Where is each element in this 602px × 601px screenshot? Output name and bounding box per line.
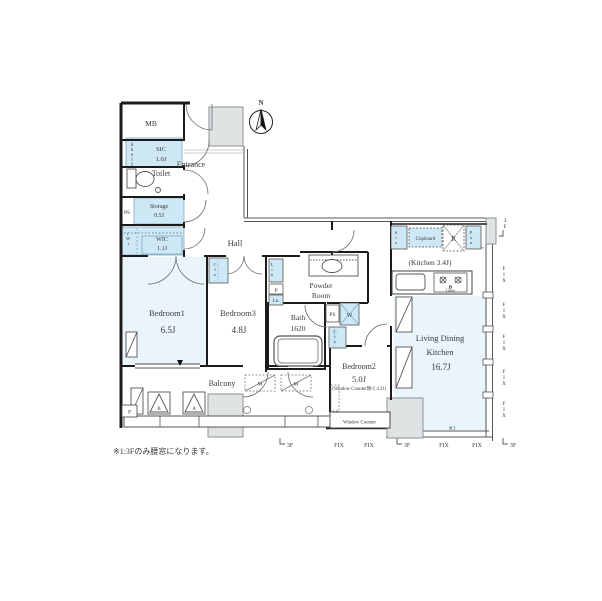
cupboard-label: Cupboard: [416, 237, 436, 242]
service-boxes-mid: [326, 303, 359, 348]
fix-labels-right: FIX FIX FIX FIX FIX 3F: [501, 218, 508, 419]
storage-floor: [134, 198, 184, 224]
hatch-b-label: B: [157, 407, 161, 412]
bath-size: 1620: [291, 324, 306, 333]
kitchen-counter: [392, 271, 472, 294]
balcony-label: Balcony: [209, 379, 236, 388]
ln-label: Ln.: [273, 299, 280, 304]
linen-label: Lin.: [270, 262, 275, 282]
m1-label: M: [258, 382, 263, 388]
kitchen-sink: [396, 274, 425, 290]
p-balcony-label: P: [128, 410, 131, 416]
ps-left-label: PS: [124, 210, 130, 216]
bedroom3-door-left: [226, 256, 244, 274]
powder-label-1: Powder: [310, 281, 333, 290]
fix-label: FIX: [439, 443, 449, 449]
sic-size: 1.0J: [156, 156, 167, 163]
ldk-size: 16.7J: [431, 362, 451, 372]
fix-label: FIX: [364, 443, 374, 449]
wic-label: WIC: [156, 237, 168, 243]
bedroom1-size: 6.5J: [161, 325, 176, 335]
compass-icon: [250, 109, 273, 134]
vanity-fixture: [309, 255, 358, 276]
sic-label: SIC: [156, 146, 166, 153]
powder-label-2: Room: [312, 291, 331, 300]
toilet-door: [184, 170, 208, 194]
entrance-door: [186, 104, 212, 130]
bath-label: Bath: [291, 313, 305, 322]
column-bottom: [387, 398, 423, 438]
bedroom2-door: [365, 324, 387, 346]
toilet-label: Toilet: [152, 169, 171, 178]
floor3-label: 3F: [404, 443, 411, 449]
pipe-space-top: [209, 107, 243, 146]
fix-label: FIX: [501, 302, 507, 320]
kitchen-storage-row: [391, 225, 481, 251]
ps-mid-label: PS: [329, 312, 335, 318]
floor-plan-page: MB Shelf SIC 1.0J Entrance Toilet Storag…: [0, 0, 602, 601]
storage-size: 0.5J: [154, 213, 165, 219]
bedroom1-label: Bedroom1: [149, 308, 185, 318]
ref1-label: ※1: [449, 426, 456, 432]
bedroom2-note: (Window Counter除く4.2J): [332, 385, 386, 392]
floor3-label: 3F: [287, 443, 294, 449]
hall-label: Hall: [228, 238, 243, 248]
m-boxes: [245, 375, 311, 391]
hatch-a-label: A: [192, 407, 196, 412]
storage-label: Storage: [150, 204, 169, 210]
balcony-railing: [124, 416, 330, 427]
bedroom3-label: Bedroom3: [220, 308, 256, 318]
floor-plan-drawing: MB Shelf SIC 1.0J Entrance Toilet Storag…: [0, 0, 602, 601]
shelf-label: Shelf: [130, 143, 135, 168]
bath-door: [305, 305, 327, 327]
window-counter-label: Window Counter: [343, 421, 376, 426]
wic-size: 1.1J: [157, 246, 168, 252]
entrance-label: Entrance: [177, 160, 206, 169]
drain-cap: [244, 407, 251, 414]
balcony-door-left: [243, 372, 268, 397]
drain-cap: [306, 407, 313, 414]
fix-label: FIX: [501, 266, 507, 284]
fix-label: FIX: [501, 401, 507, 419]
closet-b3-label: Clo.: [213, 262, 218, 282]
ldk-label-1: Living Dining: [416, 333, 465, 343]
bedroom3-size: 4.8J: [232, 325, 247, 335]
floor3-label: 3F: [510, 443, 517, 449]
closet-b2-label: Clo.: [333, 329, 338, 349]
fix-label: FIX: [334, 443, 344, 449]
bedroom1-unit: [126, 332, 137, 357]
fix-label: FIX: [472, 443, 482, 449]
fridge-label: R: [451, 235, 456, 243]
sto-label: Sto.: [394, 230, 399, 250]
m2-label: M: [294, 382, 299, 388]
stove-label: Glass: [446, 288, 456, 293]
fix-label: FIX: [501, 334, 507, 352]
bedroom3-door-right: [244, 256, 262, 274]
corner-column-right: [486, 218, 496, 244]
bedroom2-label: Bedroom2: [342, 362, 376, 371]
kitchen-label: (Kitchen 3.4J): [409, 258, 452, 267]
mb-label: MB: [145, 119, 157, 128]
footnote: ※1:3Fのみ腰窓になります。: [113, 446, 214, 456]
washer-label: W: [347, 313, 353, 319]
p-mid-label: P: [274, 288, 277, 294]
wic-door: [184, 228, 205, 249]
floor3-top-label: 3F: [502, 218, 508, 230]
ldk-label-2: Kitchen: [427, 347, 455, 357]
bedroom2-size: 5.0J: [352, 374, 367, 384]
entrance-step: [184, 150, 244, 153]
powder-corridor-door: [332, 230, 354, 252]
wic-floor: [122, 227, 184, 255]
w-vent-label: (W): [125, 231, 131, 246]
fix-label: FIX: [501, 369, 507, 387]
pantry-label: Pan.: [469, 230, 474, 250]
compass-n-label: N: [258, 99, 263, 107]
storage-door: [184, 200, 206, 222]
bathtub-fixture: [274, 336, 322, 366]
